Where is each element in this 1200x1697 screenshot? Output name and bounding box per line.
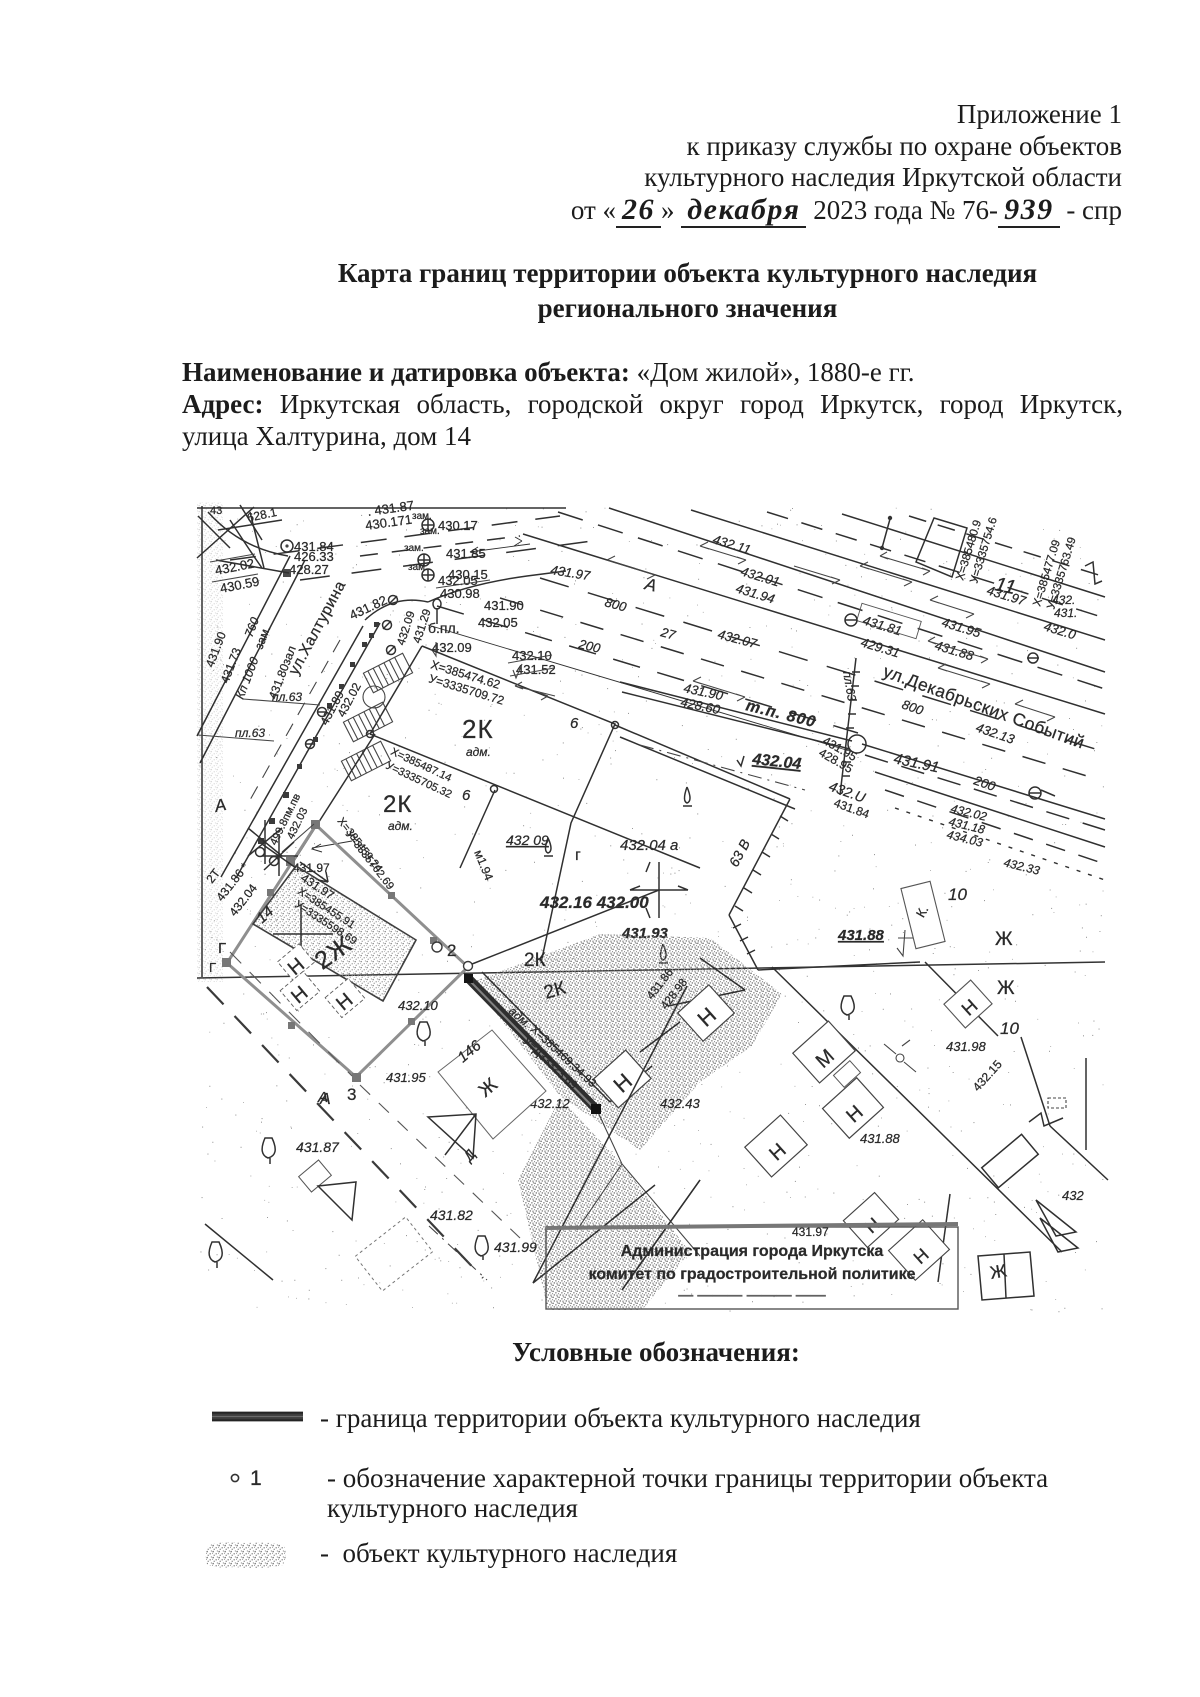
svg-text:г: г [575,847,581,864]
svg-text:428.27: 428.27 [289,562,329,577]
svg-text:431.91: 431.91 [892,750,940,776]
svg-text:зам.: зам. [420,526,440,537]
svg-text:пл.63: пл.63 [272,690,302,704]
svg-text:432.05: 432.05 [478,615,518,630]
svg-text:пл.63: пл.63 [235,726,265,740]
svg-text:200: 200 [576,636,602,656]
svg-text:2К: 2К [524,950,546,971]
svg-text:27: 27 [658,624,678,643]
svg-text:6: 6 [462,787,471,804]
svg-text:Администрация города Иркутска: Администрация города Иркутска [621,1243,884,1260]
svg-text:Д: Д [459,1146,479,1165]
svg-text:431.88: 431.88 [933,638,976,664]
svg-text:432.0: 432.0 [1042,619,1078,643]
svg-text:ул.Халтурина: ул.Халтурина [286,578,350,678]
svg-text:432.10: 432.10 [398,998,439,1013]
svg-text:63 В: 63 В [726,836,754,869]
svg-text:Г: Г [209,960,216,975]
svg-text:1: 1 [250,1467,262,1490]
svg-text:Ж: Ж [988,1260,1008,1283]
svg-text:432.15: 432.15 [970,1057,1005,1094]
svg-text:432.33: 432.33 [1002,855,1041,878]
svg-text:432.43: 432.43 [660,1096,701,1111]
svg-text:430.17: 430.17 [438,518,478,533]
svg-text:зам.: зам. [408,562,428,573]
svg-text:432.07: 432.07 [716,626,759,651]
svg-text:431.85: 431.85 [446,546,486,561]
svg-text:432: 432 [1062,1188,1084,1203]
svg-text:зам.: зам. [404,543,424,554]
svg-text:Г: Г [218,940,226,957]
svg-text:431.97: 431.97 [792,1225,829,1239]
svg-text:429.31: 429.31 [859,635,901,661]
svg-text:Ж: Ж [995,929,1013,950]
svg-text:т.п. 800: т.п. 800 [744,697,818,731]
svg-text:У=3335702.69: У=3335702.69 [343,828,396,892]
svg-text:10: 10 [1000,1019,1019,1038]
svg-text:2К: 2К [383,791,412,818]
svg-text:431.88: 431.88 [837,927,885,944]
svg-text:адм.: адм. [388,819,413,833]
svg-text:430.98: 430.98 [440,586,480,601]
svg-text:200: 200 [971,772,998,794]
svg-text:— ——— ——— ——: — ——— ——— —— [678,1287,826,1304]
svg-text:431.99: 431.99 [494,1239,537,1255]
svg-text:Ж: Ж [997,978,1015,999]
svg-text:431.88: 431.88 [860,1131,901,1146]
svg-text:43: 43 [210,505,222,517]
svg-text:б.пл.: б.пл. [428,620,460,636]
svg-text:800: 800 [900,697,926,718]
svg-text:м1.94: м1.94 [471,848,496,883]
svg-text:431.98: 431.98 [946,1039,987,1054]
svg-text:А: А [319,1091,331,1108]
svg-text:431.90: 431.90 [484,598,524,613]
svg-text:431.95: 431.95 [386,1070,427,1085]
svg-text:432.04: 432.04 [751,751,803,773]
svg-text:2: 2 [447,941,456,960]
svg-text:432.04 а: 432.04 а [620,837,678,854]
svg-text:431.82: 431.82 [430,1207,473,1223]
svg-text:432.11: 432.11 [711,532,752,558]
svg-text:10: 10 [948,885,967,904]
svg-text:432 09: 432 09 [506,832,549,848]
svg-text:комитет по градостроительной п: комитет по градостроительной политике [589,1266,916,1283]
svg-text:431.95: 431.95 [940,615,983,641]
svg-text:пл.63: пл.63 [840,670,859,702]
svg-text:зам.: зам. [412,511,432,522]
svg-text:432.16 432.00: 432.16 432.00 [539,893,649,912]
svg-text:адм.: адм. [466,745,491,759]
svg-text:3: 3 [347,1085,356,1104]
svg-text:А: А [642,574,659,595]
svg-text:6: 6 [570,715,579,732]
svg-text:431.87: 431.87 [296,1139,340,1155]
svg-text:2К: 2К [462,714,494,744]
svg-text:800: 800 [603,594,629,614]
